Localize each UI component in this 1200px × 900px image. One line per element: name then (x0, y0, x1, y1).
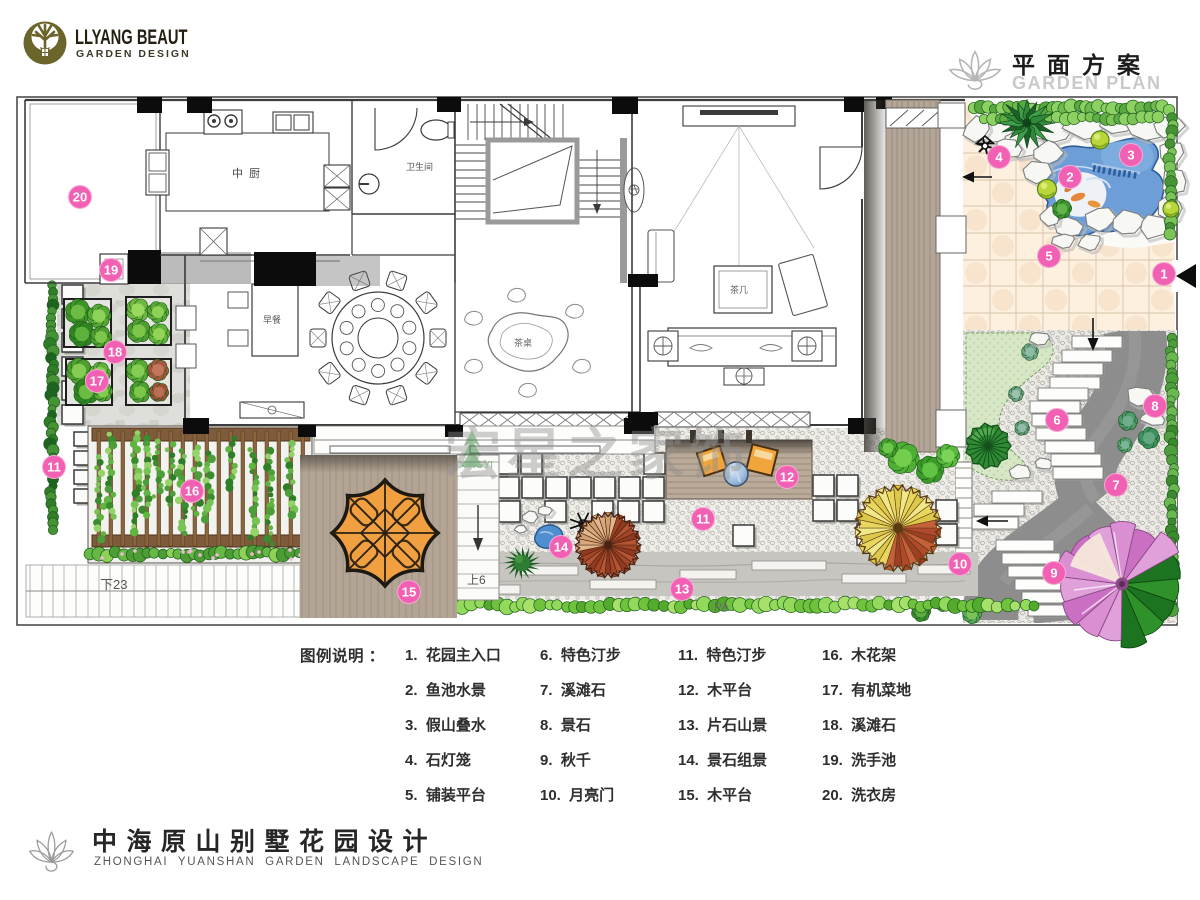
svg-text:19: 19 (104, 263, 118, 278)
svg-text:20: 20 (73, 190, 87, 205)
svg-text:12: 12 (780, 470, 794, 485)
svg-text:15: 15 (402, 585, 416, 600)
svg-text:11: 11 (47, 460, 61, 475)
svg-text:7: 7 (1112, 478, 1119, 493)
svg-text:14: 14 (554, 540, 569, 555)
svg-text:18: 18 (108, 345, 122, 360)
svg-text:16: 16 (185, 484, 199, 499)
svg-text:2: 2 (1066, 170, 1073, 185)
svg-text:下23: 下23 (100, 577, 127, 592)
svg-text:1: 1 (1160, 267, 1167, 282)
svg-text:中厨: 中厨 (232, 167, 266, 180)
svg-text:11: 11 (696, 512, 710, 527)
svg-text:5: 5 (1045, 249, 1052, 264)
svg-text:XINGYI: XINGYI (459, 460, 493, 471)
svg-text:8: 8 (1151, 399, 1158, 414)
svg-text:卫生间: 卫生间 (406, 161, 433, 172)
svg-text:茶几: 茶几 (730, 284, 748, 295)
svg-text:PA: PA (714, 600, 729, 614)
svg-text:上6: 上6 (467, 573, 486, 587)
svg-text:茶桌: 茶桌 (514, 337, 532, 348)
svg-text:6: 6 (1053, 413, 1060, 428)
svg-text:早餐: 早餐 (263, 314, 281, 325)
svg-text:4: 4 (995, 150, 1003, 165)
svg-text:10: 10 (953, 557, 967, 572)
svg-text:17: 17 (90, 374, 104, 389)
svg-text:3: 3 (1127, 148, 1134, 163)
svg-text:13: 13 (675, 582, 689, 597)
svg-text:宏星之家饰: 宏星之家饰 (445, 423, 750, 486)
svg-text:9: 9 (1050, 566, 1057, 581)
